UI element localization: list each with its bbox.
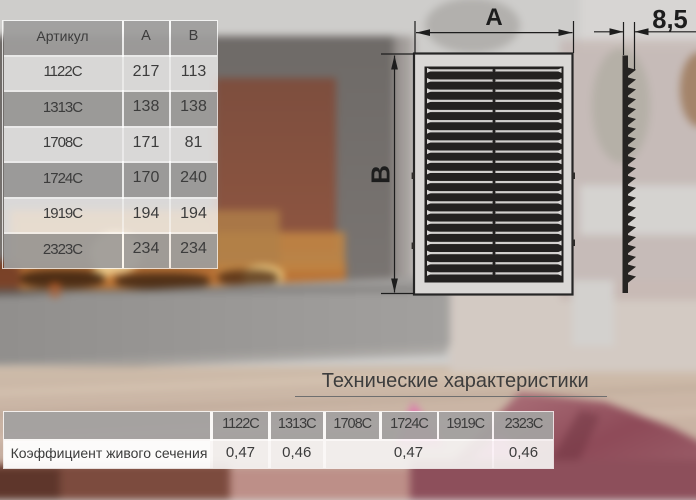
svg-text:8,5: 8,5 <box>652 6 687 34</box>
svg-text:В: В <box>366 165 396 184</box>
svg-text:А: А <box>485 4 502 31</box>
